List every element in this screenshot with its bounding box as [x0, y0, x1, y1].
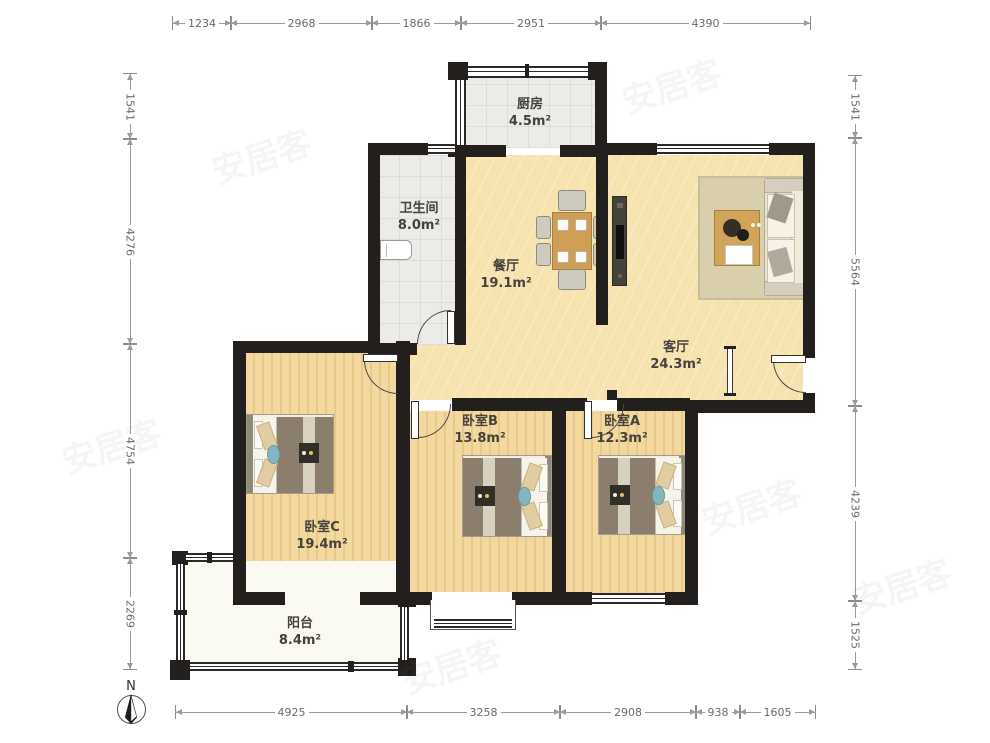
cabinet-decor	[618, 274, 622, 278]
room-label-balcony: 阳台 8.4m²	[279, 616, 321, 650]
balcony-post	[398, 592, 416, 607]
dim-right-4: 1525	[848, 600, 862, 670]
bay-window	[434, 619, 512, 628]
dim-value: 2908	[611, 707, 645, 718]
balcony-post	[170, 660, 190, 680]
room-name: 卧室A	[596, 414, 647, 431]
room-name: 厨房	[509, 97, 551, 114]
room-area: 12.3m²	[596, 431, 647, 448]
entrance-door-leaf	[771, 355, 806, 363]
dim-value: 1541	[850, 90, 861, 124]
table-tray	[725, 245, 753, 265]
bay-window-post	[424, 592, 432, 600]
bedroom-a-window	[592, 593, 665, 604]
watermark: 安居客	[615, 45, 727, 123]
room-label-kitchen: 厨房 4.5m²	[509, 97, 551, 131]
coffee-table	[714, 210, 760, 266]
living-window	[657, 144, 769, 154]
bathroom-sink	[380, 240, 412, 260]
room-name: 阳台	[279, 616, 321, 633]
bottom-wall	[516, 592, 592, 605]
tv-cabinet	[612, 196, 627, 286]
dim-left-2: 4276	[123, 138, 137, 345]
room-label-dining: 餐厅 19.1m²	[480, 259, 531, 293]
decor-dot	[485, 494, 489, 498]
bed-round-pillow	[652, 486, 665, 505]
watermark: 安居客	[55, 405, 167, 483]
dim-value: 4925	[275, 707, 309, 718]
room-name: 卧室B	[454, 414, 505, 431]
cabinet-decor	[617, 203, 623, 208]
bedroom-ab-divider-wall	[552, 405, 566, 605]
room-area: 8.0m²	[398, 218, 440, 235]
bedrooms-top-wall	[617, 398, 690, 411]
bedroom-bc-divider-wall	[396, 341, 410, 602]
door-frame-stub	[607, 390, 617, 400]
room-area: 19.1m²	[480, 276, 531, 293]
room-name: 餐厅	[480, 259, 531, 276]
dim-bottom-1: 4925	[175, 705, 408, 719]
floorplan-canvas: 厨房 4.5m² 卫生间 8.0m² 餐厅 19.1m² 客厅 24.3m² 卧…	[0, 0, 990, 743]
partition-cap	[724, 346, 736, 349]
dim-value: 938	[705, 707, 732, 718]
sofa-armrest	[765, 281, 805, 295]
room-name: 客厅	[650, 340, 701, 357]
dining-chair	[558, 269, 586, 290]
dim-left-4: 2269	[123, 557, 137, 670]
room-area: 13.8m²	[454, 431, 505, 448]
bedroom-c-top-wall	[233, 341, 368, 353]
bedroom-a-right-wall	[685, 400, 698, 605]
bathroom-left-wall	[368, 143, 380, 360]
dim-top-2: 2968	[230, 16, 373, 30]
place-setting	[575, 251, 587, 263]
room-label-bedroom-a: 卧室A 12.3m²	[596, 414, 647, 448]
dim-value: 2269	[125, 597, 136, 631]
dim-bottom-5: 1605	[739, 705, 816, 719]
decor-dot	[309, 451, 313, 455]
compass-needle-icon	[123, 694, 139, 724]
balcony-post	[398, 658, 416, 676]
dim-left-1: 1541	[123, 73, 137, 140]
dim-bottom-2: 3258	[406, 705, 561, 719]
tv-icon	[616, 225, 624, 259]
decor-dot	[620, 493, 624, 497]
room-label-bedroom-c: 卧室C 19.4m²	[296, 520, 347, 554]
bathroom-window	[428, 144, 455, 154]
kitchen-right-wall	[595, 78, 607, 148]
bedroom-c-left-wall	[233, 341, 246, 602]
window-mullion	[174, 610, 187, 615]
dim-value: 1541	[125, 90, 136, 124]
dining-chair	[536, 216, 551, 239]
bed-round-pillow	[267, 445, 280, 464]
dim-value: 2951	[514, 18, 548, 29]
partition-cap	[724, 393, 736, 396]
bay-window-post	[512, 592, 520, 600]
room-name: 卫生间	[398, 201, 440, 218]
bedroom-b-door-leaf	[411, 401, 419, 439]
sofa	[764, 178, 806, 296]
dining-chair	[558, 190, 586, 211]
kitchen-side-window	[455, 80, 466, 147]
living-partition-line	[727, 348, 733, 395]
dining-chair	[536, 243, 551, 266]
dim-value: 2968	[285, 18, 319, 29]
bed-bedroom-a	[598, 455, 686, 535]
bathroom-right-wall	[455, 155, 466, 345]
place-setting	[557, 219, 569, 231]
compass-circle	[117, 695, 146, 724]
dim-value: 4390	[689, 18, 723, 29]
bed-blanket-fold	[610, 485, 630, 505]
dim-bottom-3: 2908	[559, 705, 697, 719]
dim-right-1: 1541	[848, 75, 862, 139]
window-mullion	[525, 64, 529, 78]
room-area: 4.5m²	[509, 114, 551, 131]
dim-top-1: 1234	[172, 16, 232, 30]
bedrooms-top-wall	[452, 398, 587, 411]
dim-top-4: 2951	[460, 16, 602, 30]
bedroom-a-door-leaf	[584, 401, 592, 439]
bottom-wall	[360, 592, 430, 605]
room-label-bathroom: 卫生间 8.0m²	[398, 201, 440, 235]
room-area: 8.4m²	[279, 633, 321, 650]
right-exterior-wall	[803, 143, 815, 358]
room-label-bedroom-b: 卧室B 13.8m²	[454, 414, 505, 448]
decor-dot	[613, 493, 617, 497]
dim-value: 4276	[125, 225, 136, 259]
dim-value: 4754	[125, 434, 136, 468]
dim-left-3: 4754	[123, 343, 137, 559]
north-indicator: N	[116, 680, 146, 724]
dining-table	[552, 212, 592, 270]
decor-dot	[478, 494, 482, 498]
balcony-window-right	[400, 605, 409, 660]
dim-value: 3258	[467, 707, 501, 718]
window-mullion	[348, 661, 354, 672]
bottom-wall	[233, 592, 285, 605]
dim-right-3: 4239	[848, 405, 862, 602]
dining-living-wall	[596, 143, 608, 325]
wall-post	[448, 62, 468, 80]
dim-value: 1234	[185, 18, 219, 29]
decor-dot	[302, 451, 306, 455]
watermark: 安居客	[695, 465, 807, 543]
table-decor-pot	[737, 229, 749, 241]
bedroom-c-door-leaf	[363, 354, 398, 362]
place-setting	[557, 251, 569, 263]
bathroom-top-wall	[380, 143, 428, 155]
table-decor-dot	[757, 223, 761, 227]
dim-bottom-4: 938	[695, 705, 741, 719]
room-label-living: 客厅 24.3m²	[650, 340, 701, 374]
dim-value: 1605	[761, 707, 795, 718]
dim-value: 1525	[850, 618, 861, 652]
window-mullion	[207, 552, 212, 563]
dim-value: 4239	[850, 487, 861, 521]
room-area: 19.4m²	[296, 537, 347, 554]
place-setting	[575, 219, 587, 231]
bed-bedroom-c	[246, 414, 334, 494]
dim-top-5: 4390	[600, 16, 811, 30]
room-name: 卧室C	[296, 520, 347, 537]
bed-round-pillow	[518, 487, 531, 506]
table-decor-dot	[751, 223, 755, 227]
balcony-window-bottom	[190, 662, 400, 671]
dim-value: 5564	[850, 255, 861, 289]
dim-right-2: 5564	[848, 137, 862, 407]
bed-blanket-fold	[299, 443, 319, 463]
north-label: N	[116, 680, 146, 693]
sink-divider	[386, 244, 387, 257]
dim-value: 1866	[400, 18, 434, 29]
bed-blanket-fold	[475, 486, 495, 506]
dim-top-3: 1866	[371, 16, 462, 30]
bed-bedroom-b	[462, 455, 552, 537]
watermark: 安居客	[205, 115, 317, 193]
living-bottom-wall	[690, 400, 815, 413]
bottom-wall	[665, 592, 698, 605]
bathroom-door-leaf	[447, 311, 455, 344]
room-area: 24.3m²	[650, 357, 701, 374]
